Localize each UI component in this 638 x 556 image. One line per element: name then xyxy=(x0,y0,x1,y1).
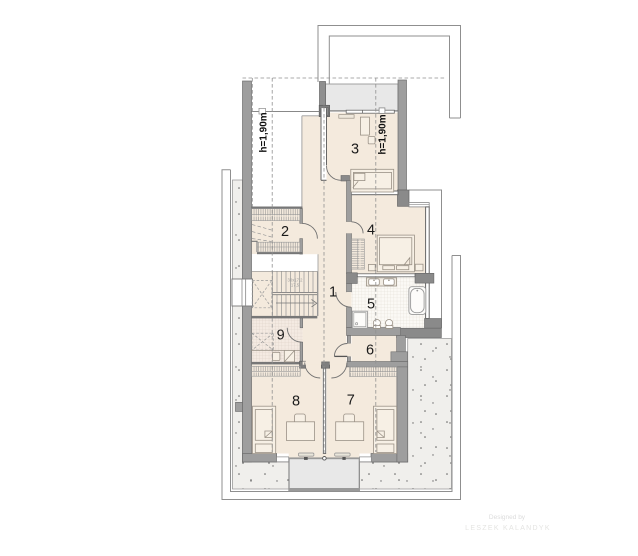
svg-text:4: 4 xyxy=(367,223,375,239)
svg-text:5: 5 xyxy=(367,297,375,313)
svg-text:7: 7 xyxy=(347,393,355,409)
svg-text:8: 8 xyxy=(292,394,300,410)
svg-text:6: 6 xyxy=(366,343,374,359)
svg-text:Designed by: Designed by xyxy=(489,514,526,521)
svg-text:2: 2 xyxy=(281,224,289,240)
svg-text:h=1,90m: h=1,90m xyxy=(258,112,269,152)
svg-text:h=1,90m: h=1,90m xyxy=(378,114,389,154)
svg-text:LESZEK KALANDYK: LESZEK KALANDYK xyxy=(465,525,551,532)
svg-text:17,5: 17,5 xyxy=(291,283,300,288)
svg-text:1: 1 xyxy=(329,285,337,301)
svg-text:9: 9 xyxy=(277,328,285,344)
svg-text:3: 3 xyxy=(351,142,359,158)
